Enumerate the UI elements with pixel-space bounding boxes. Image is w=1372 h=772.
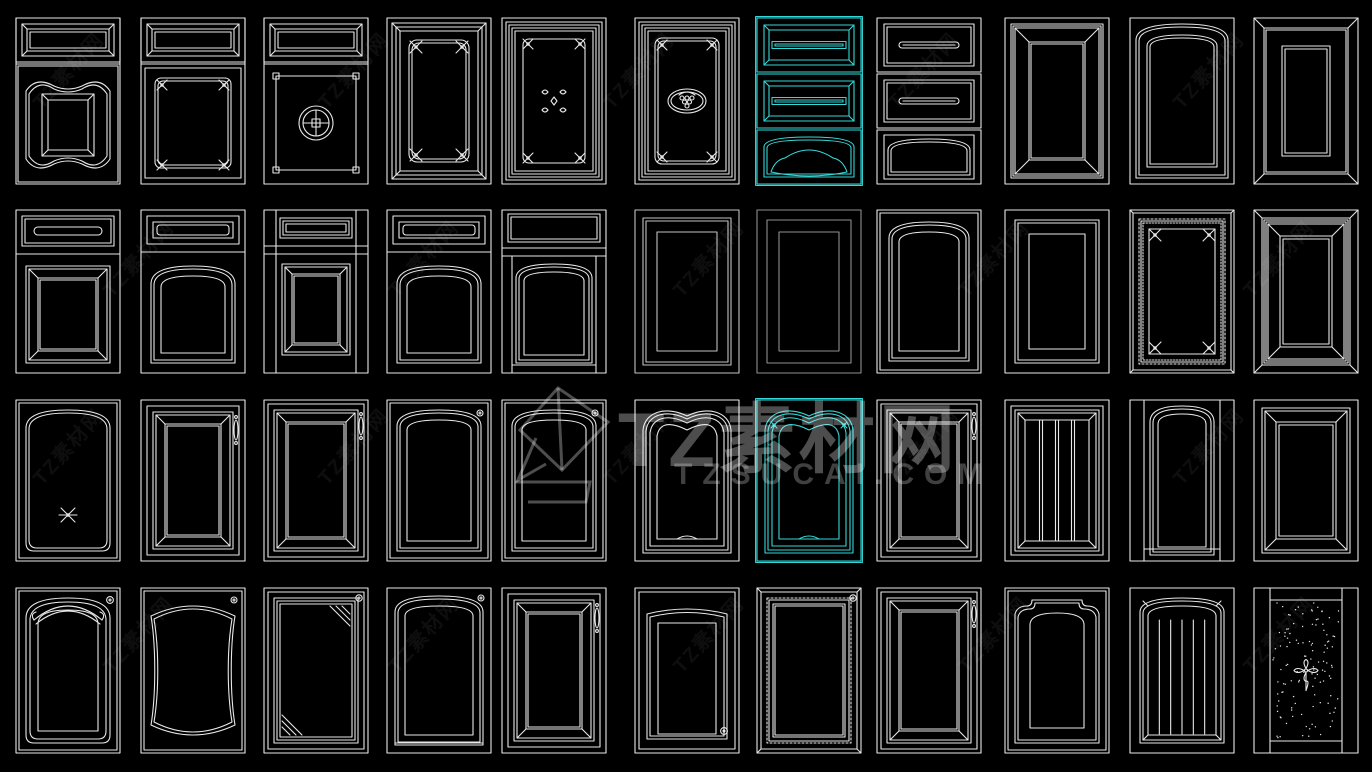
door-r2c4-dd-arch[interactable] [385, 208, 493, 375]
door-r3c11-panel-bevel[interactable] [1252, 398, 1360, 563]
door-r1c10-panel-arch-simple[interactable] [1128, 16, 1236, 186]
door-r2c2-dd-arch[interactable] [139, 208, 247, 375]
door-r3c2-rect-handle-frame[interactable] [139, 398, 247, 563]
door-r2c1-dd-rect[interactable] [14, 208, 122, 375]
door-r1c11-panel-bevel-wide[interactable] [1252, 16, 1360, 186]
door-r2c10-beaded-ornate[interactable] [1128, 208, 1236, 375]
door-r1c6-panel-grapes[interactable] [633, 16, 741, 186]
door-r3c8-rect-handle[interactable] [875, 398, 983, 563]
door-r2c8-arch-full[interactable] [875, 208, 983, 375]
door-r3c7-cathedral[interactable] [755, 398, 863, 563]
door-r1c4-panel-corner-cross[interactable] [385, 16, 493, 186]
door-r3c5-arch-knob[interactable] [500, 398, 608, 563]
door-r2c3-dd-rect-stile[interactable] [262, 208, 370, 375]
door-r4c4-arch-knob2[interactable] [385, 586, 493, 755]
door-r4c7-beaded-knob[interactable] [755, 586, 863, 755]
door-r3c10-arch-stiles[interactable] [1128, 398, 1236, 563]
door-r1c9-panel-plain[interactable] [1003, 16, 1111, 186]
door-r2c5-dd-arch-stile[interactable] [500, 208, 608, 375]
door-r4c6-soft-arch-knob[interactable] [633, 586, 741, 755]
door-r3c6-cathedral[interactable] [633, 398, 741, 563]
door-r4c2-serpentine-knob[interactable] [139, 586, 247, 755]
cad-drawing-canvas: TZ素材网TZ素材网TZ素材网TZ素材网TZ素材网TZ素材网TZ素材网TZ素材网… [0, 0, 1372, 772]
door-r3c9-slats[interactable] [1003, 398, 1111, 563]
door-r2c6-framed-rect[interactable] [633, 208, 741, 375]
door-r3c3-rect-handle[interactable] [262, 398, 370, 563]
door-r4c5-rect-handle-frame[interactable] [500, 586, 608, 755]
door-r1c1-combo-scallop[interactable] [14, 16, 122, 186]
door-r3c1-arch-x[interactable] [14, 398, 122, 563]
door-r4c3-glass-corner-knob[interactable] [262, 586, 370, 755]
door-r2c11-bevel-multi[interactable] [1252, 208, 1360, 375]
door-r1c7-drawer-stack-bevel[interactable] [755, 16, 863, 186]
door-r1c2-combo-corner-cross[interactable] [139, 16, 247, 186]
door-r4c9-ogee-shoulder[interactable] [1003, 586, 1111, 755]
door-r3c4-arch-knob[interactable] [385, 398, 493, 563]
door-r4c11-stipple-glass[interactable] [1252, 586, 1360, 755]
door-r1c5-panel-stars[interactable] [500, 16, 608, 186]
door-r4c1-crest-arch[interactable] [14, 586, 122, 755]
door-r4c10-arch-beadboard[interactable] [1128, 586, 1236, 755]
door-r4c8-rect-handle[interactable] [875, 586, 983, 755]
door-r2c7-framed-rect-thin[interactable] [755, 208, 863, 375]
door-r1c3-combo-coin[interactable] [262, 16, 370, 186]
door-r2c9-framed-rect2[interactable] [1003, 208, 1111, 375]
door-r1c8-drawer-stack-slab[interactable] [875, 16, 983, 186]
